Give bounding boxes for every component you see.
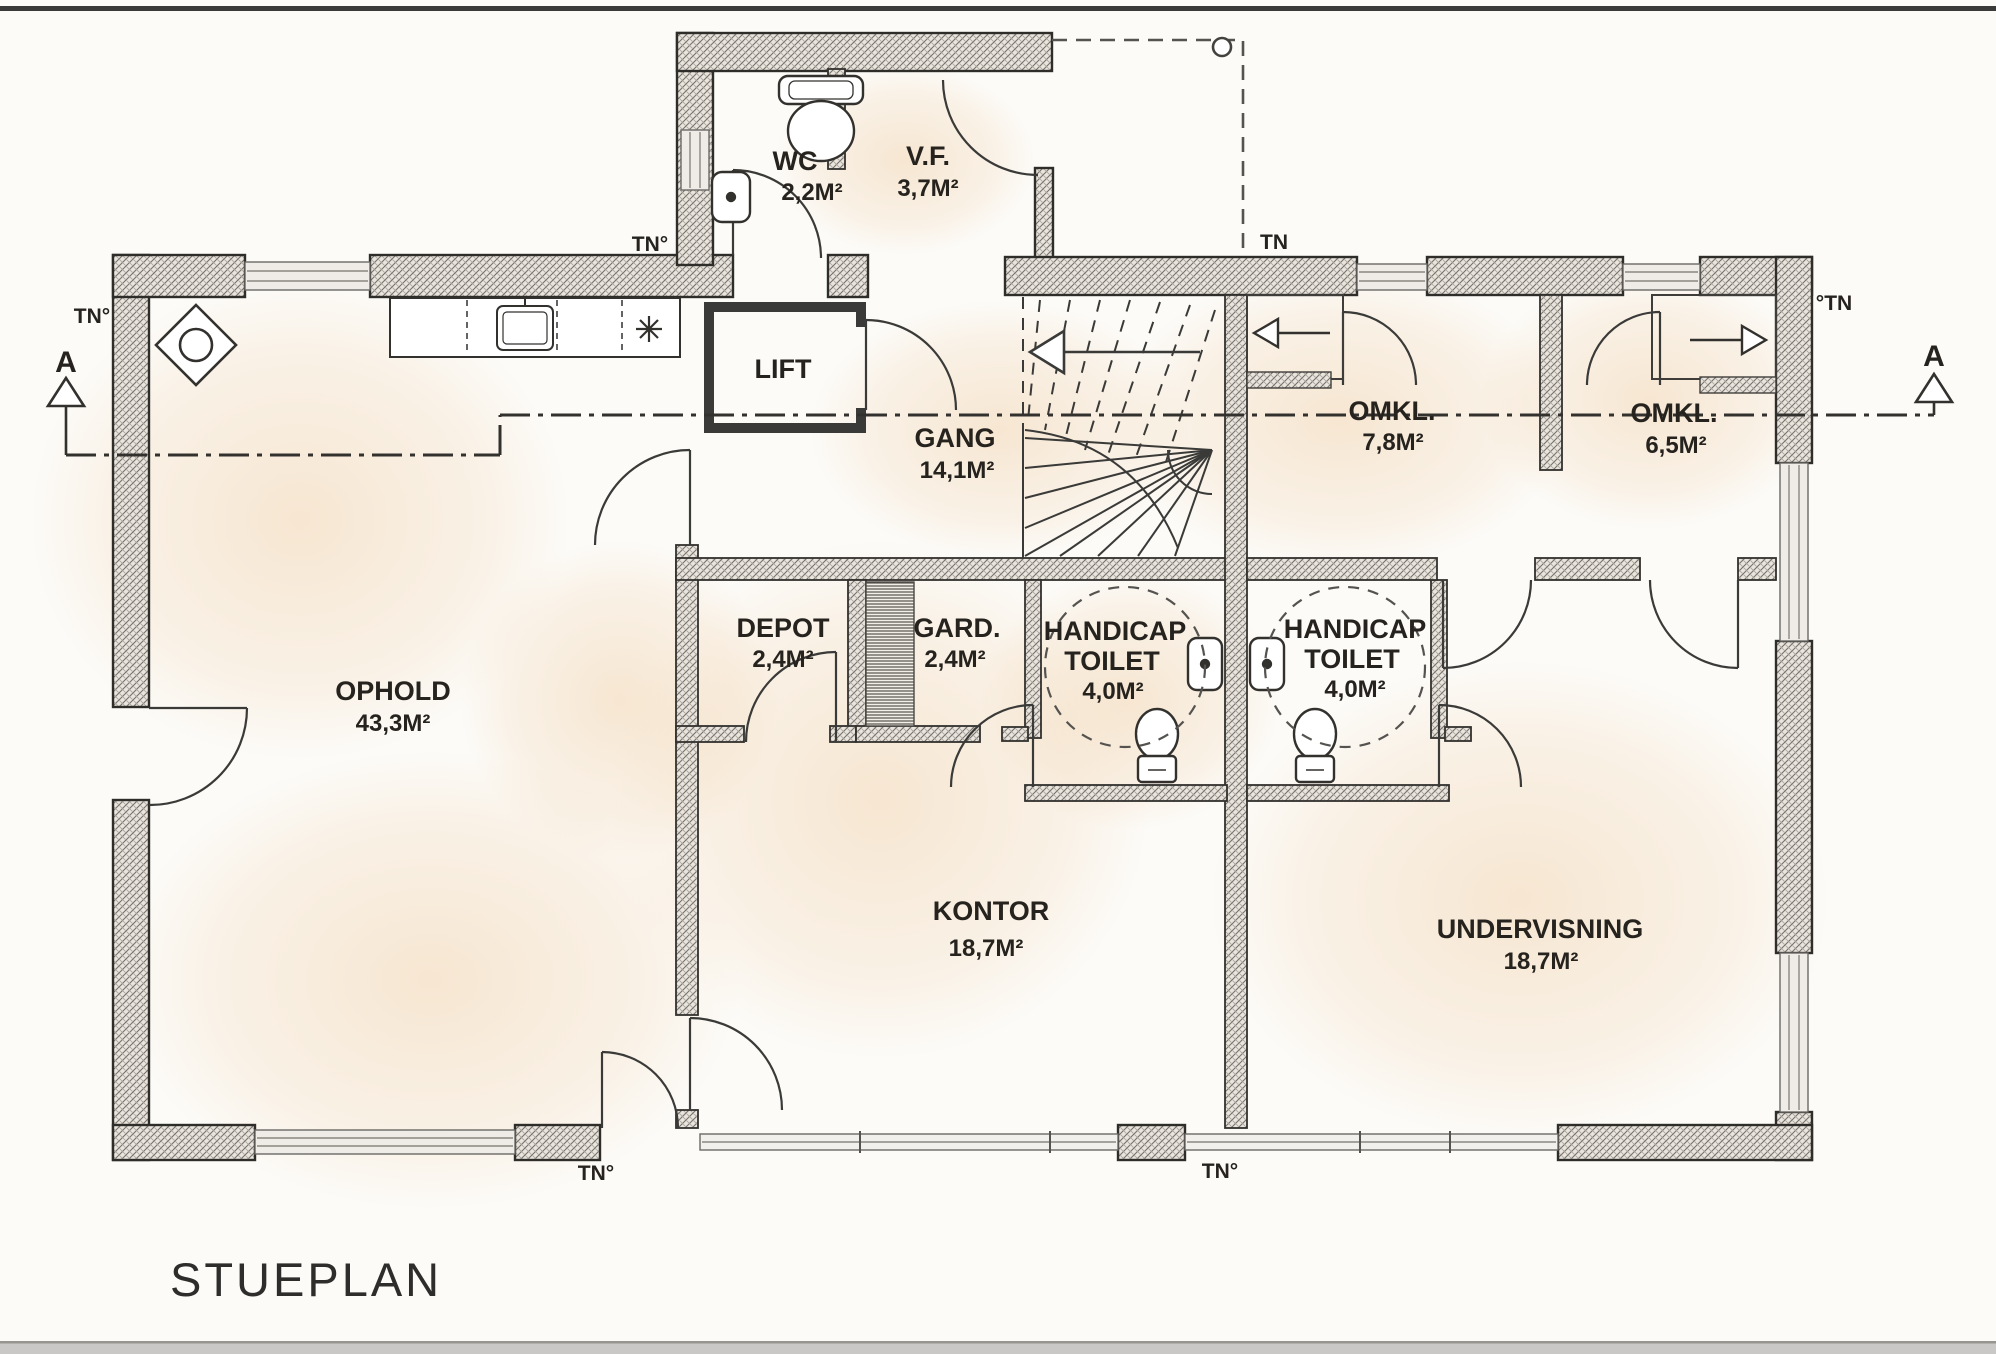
room-label-gang: GANG [915, 423, 996, 453]
tn-marker-bottom-left: TN° [578, 1162, 614, 1185]
kitchen-counter [390, 298, 680, 357]
window-band [1780, 953, 1808, 1112]
wardrobe-strip [866, 582, 914, 726]
room-area-ophold: 43,3M² [356, 710, 431, 737]
wall-segment [676, 726, 744, 742]
window-band [1357, 264, 1427, 290]
door-ophold-gang [595, 450, 690, 545]
wall-segment [677, 33, 1052, 71]
section-marker-right [1916, 374, 1952, 415]
room-area-handicap-right: 4,0M² [1324, 676, 1385, 703]
room-label-undervisning: UNDERVISNING [1437, 914, 1644, 944]
porch-outline [1052, 38, 1243, 250]
wall-segment [828, 255, 868, 297]
room-label-wc: WC [773, 146, 818, 176]
wall-segment [1247, 785, 1449, 801]
wall-segment [113, 800, 149, 1160]
wall-segment [1025, 785, 1227, 801]
wall-segment [1035, 168, 1053, 260]
wall-segment [515, 1125, 600, 1160]
room-area-gard: 2,4M² [924, 646, 985, 673]
wall-segment [113, 255, 149, 707]
window-band [245, 262, 370, 290]
wall-segment [113, 255, 245, 297]
washbasin-icon [712, 172, 750, 222]
room-label-handicap-left-2: TOILET [1064, 646, 1160, 676]
washbasin-icon [1188, 638, 1222, 690]
window-band [681, 130, 709, 190]
wall-segment [113, 1125, 255, 1160]
windbreak-left-bench [1247, 372, 1331, 388]
section-letter-left: A [55, 346, 77, 379]
wall-segment [1247, 558, 1437, 580]
wall-segment [1776, 257, 1812, 463]
wall-segment [1535, 558, 1640, 580]
room-area-kontor: 18,7M² [949, 935, 1024, 962]
room-area-omkl-left: 7,8M² [1362, 429, 1423, 456]
room-area-undervisning: 18,7M² [1504, 948, 1579, 975]
door-omkl-left [1443, 580, 1531, 668]
room-label-gard: GARD. [914, 613, 1001, 643]
tn-marker-top-right: °TN [1816, 292, 1852, 315]
room-area-gang: 14,1M² [920, 457, 995, 484]
room-area-handicap-left: 4,0M² [1082, 678, 1143, 705]
wall-segment [1738, 558, 1776, 580]
wall-segment [1558, 1125, 1812, 1160]
room-label-handicap-right-2: TOILET [1304, 644, 1400, 674]
wall-segment [830, 726, 856, 742]
wall-segment [1540, 295, 1562, 470]
window-band [1185, 1131, 1558, 1153]
wall-segment [676, 1110, 698, 1128]
wall-segment [676, 558, 1227, 580]
window-band [700, 1131, 1118, 1153]
sink-icon [497, 298, 553, 350]
room-area-depot: 2,4M² [752, 646, 813, 673]
window-band [1623, 264, 1700, 290]
tn-marker-kitchen: TN° [632, 233, 668, 256]
room-label-vf: V.F. [906, 141, 950, 171]
page-top-border [0, 6, 1996, 11]
wall-segment [1002, 727, 1028, 741]
room-area-vf: 3,7M² [897, 175, 958, 202]
room-label-handicap-left-1: HANDICAP [1044, 616, 1187, 646]
section-letter-right: A [1923, 340, 1945, 373]
wall-segment [848, 580, 866, 728]
room-label-omkl-right: OMKL. [1631, 398, 1718, 428]
page-title: STUEPLAN [170, 1253, 442, 1306]
door-omkl-right [1650, 580, 1738, 668]
room-label-handicap-right-1: HANDICAP [1284, 614, 1427, 644]
page-bottom-border-line [0, 1341, 1996, 1344]
window-band [255, 1130, 515, 1154]
room-area-omkl-right: 6,5M² [1645, 432, 1706, 459]
room-area-wc: 2,2M² [781, 179, 842, 206]
windbreak-right-bench [1700, 377, 1776, 393]
wall-segment [856, 726, 980, 742]
tn-marker-porch: TN [1260, 231, 1288, 254]
wall-segment [1005, 257, 1357, 295]
wall-segment [1776, 641, 1812, 953]
wall-segment [1427, 257, 1623, 295]
room-label-kontor: KONTOR [933, 896, 1050, 926]
porch-column [1213, 38, 1231, 56]
room-label-ophold: OPHOLD [335, 676, 451, 706]
wall-segment-party-wall [1225, 295, 1247, 1128]
washbasin-icon [1250, 638, 1284, 690]
tn-marker-bottom-mid: TN° [1202, 1160, 1238, 1183]
wall-segment [1118, 1125, 1185, 1160]
floorplan-drawing: WC 2,2M² V.F. 3,7M² LIFT GANG 14,1M² OMK… [0, 0, 1996, 1354]
wall-segment [1445, 727, 1471, 741]
tn-marker-top-left: TN° [74, 305, 110, 328]
wall-segment [676, 545, 698, 1015]
room-label-lift: LIFT [755, 354, 812, 384]
floorplan-page: WC 2,2M² V.F. 3,7M² LIFT GANG 14,1M² OMK… [0, 0, 1996, 1354]
window-band [1780, 463, 1808, 641]
room-label-omkl-left: OMKL. [1349, 396, 1436, 426]
room-label-depot: DEPOT [736, 613, 830, 643]
